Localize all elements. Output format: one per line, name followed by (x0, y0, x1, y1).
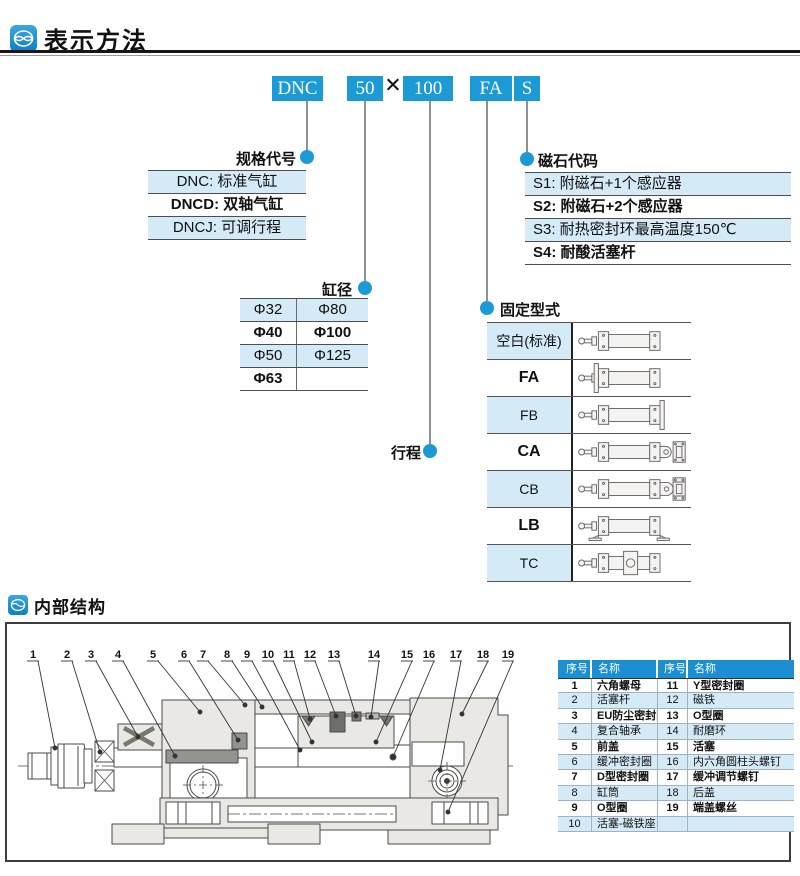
mount-style-icon (573, 323, 691, 359)
label-bore: 缸径 (322, 279, 352, 300)
part-no: 15 (658, 740, 688, 754)
section-icon (8, 595, 28, 615)
mount-style-icon (573, 508, 691, 544)
bore-cell: Φ32 (240, 299, 297, 321)
table-row: S1: 附磁石+1个感应器 (525, 172, 791, 195)
svg-text:5: 5 (150, 649, 156, 661)
model-box-mount: FA (470, 76, 512, 101)
parts-row: 1 六角螺母 11 Y型密封圈 (558, 678, 794, 693)
part-name: 磁铁 (688, 693, 794, 707)
header-no-1: 序号 (558, 660, 592, 678)
label-stroke: 行程 (391, 442, 421, 463)
svg-text:14: 14 (368, 649, 381, 661)
svg-text:2: 2 (64, 649, 70, 661)
svg-text:15: 15 (401, 649, 413, 661)
model-box-prefix: DNC (272, 76, 323, 101)
part-name: 内六角圆柱头螺钉 (688, 755, 794, 769)
bore-cell: Φ40 (240, 322, 297, 344)
part-name: 缓冲密封圈 (592, 755, 658, 769)
part-no: 12 (658, 693, 688, 707)
svg-text:17: 17 (450, 649, 462, 661)
part-name: EU防尘密封圈 (592, 709, 658, 723)
part-no (658, 817, 688, 831)
label-magnet-code: 磁石代码 (538, 150, 598, 171)
parts-row: 3 EU防尘密封圈 13 O型圈 (558, 709, 794, 724)
bore-cell: Φ125 (297, 345, 368, 367)
table-row: S4: 耐酸活塞杆 (525, 241, 791, 264)
part-name: 前盖 (592, 740, 658, 754)
parts-row: 10 活塞-磁铁座 (558, 817, 794, 832)
parts-table-header: 序号 名称 序号 名称 (558, 660, 794, 678)
part-no: 7 (558, 770, 592, 784)
part-name: Y型密封圈 (688, 679, 794, 692)
svg-text:7: 7 (200, 649, 206, 661)
svg-text:11: 11 (283, 649, 295, 661)
table-row: S2: 附磁石+2个感应器 (525, 195, 791, 218)
table-row: DNC: 标准气缸 (148, 170, 306, 193)
svg-text:19: 19 (502, 649, 514, 661)
part-no: 10 (558, 817, 592, 831)
bore-row: Φ40 Φ100 (240, 321, 368, 344)
part-name: O型圈 (592, 801, 658, 815)
mount-code: LB (487, 508, 573, 544)
part-name: 复合轴承 (592, 724, 658, 738)
part-name: 活塞杆 (592, 693, 658, 707)
part-name: 端盖螺丝 (688, 801, 794, 815)
title-rule-thin (0, 55, 800, 56)
part-no: 14 (658, 724, 688, 738)
bore-cell: Φ50 (240, 345, 297, 367)
parts-row: 6 缓冲密封圈 16 内六角圆柱头螺钉 (558, 755, 794, 770)
header-name-1: 名称 (592, 660, 658, 678)
parts-row: 4 复合轴承 14 耐磨环 (558, 724, 794, 739)
parts-table-body: 1 六角螺母 11 Y型密封圈 2 活塞杆 12 磁铁 3 EU防尘密封圈 13… (558, 678, 794, 832)
table-row: S3: 耐热密封环最高温度150℃ (525, 218, 791, 241)
mount-row: CA (487, 433, 691, 470)
model-box-magnet: S (514, 76, 540, 101)
mount-code: CB (487, 471, 573, 507)
part-no: 9 (558, 801, 592, 815)
svg-text:18: 18 (477, 649, 489, 661)
part-name: 缸筒 (592, 786, 658, 800)
brand-icon (10, 25, 37, 52)
multiply-sign: × (378, 69, 408, 102)
header-name-2: 名称 (688, 660, 794, 678)
part-name: 耐磨环 (688, 724, 794, 738)
part-name: O型圈 (688, 709, 794, 723)
part-name: 活塞 (688, 740, 794, 754)
svg-text:8: 8 (224, 649, 230, 661)
part-no: 18 (658, 786, 688, 800)
svg-text:3: 3 (88, 649, 94, 661)
title-rule-thick (0, 50, 800, 53)
mount-code: CA (487, 434, 573, 470)
part-name: 六角螺母 (592, 679, 658, 692)
callout-numbers: 12345678910111213141516171819 (30, 649, 514, 661)
parts-row: 9 O型圈 19 端盖螺丝 (558, 801, 794, 816)
parts-row: 5 前盖 15 活塞 (558, 740, 794, 755)
part-no: 1 (558, 679, 592, 692)
mount-code: FB (487, 397, 573, 433)
bore-row: Φ50 Φ125 (240, 344, 368, 367)
part-no: 2 (558, 693, 592, 707)
table-row: DNCD: 双轴气缸 (148, 193, 306, 216)
table-row: DNCJ: 可调行程 (148, 216, 306, 239)
part-name: D型密封圈 (592, 770, 658, 784)
model-box-stroke: 100 (403, 76, 453, 101)
mount-code: TC (487, 545, 573, 581)
mount-row: TC (487, 544, 691, 581)
mount-code: 空白(标准) (487, 323, 573, 359)
parts-row: 7 D型密封圈 17 缓冲调节螺钉 (558, 770, 794, 785)
part-no: 17 (658, 770, 688, 784)
bore-cell (297, 368, 368, 390)
bore-row: Φ32 Φ80 (240, 298, 368, 321)
mount-row: CB (487, 470, 691, 507)
bore-row: Φ63 (240, 367, 368, 390)
label-mount-type: 固定型式 (500, 299, 560, 320)
mount-row: FB (487, 396, 691, 433)
parts-table: 序号 名称 序号 名称 1 六角螺母 11 Y型密封圈 2 活塞杆 12 磁铁 … (558, 660, 794, 832)
mount-code: FA (487, 360, 573, 396)
part-no: 6 (558, 755, 592, 769)
part-no: 4 (558, 724, 592, 738)
magnet-code-table: S1: 附磁石+1个感应器 S2: 附磁石+2个感应器 S3: 耐热密封环最高温… (525, 172, 791, 265)
bore-table: Φ32 Φ80 Φ40 Φ100 Φ50 Φ125 Φ63 (240, 298, 368, 391)
part-no: 11 (658, 679, 688, 692)
mount-style-icon (573, 360, 691, 396)
svg-text:1: 1 (30, 649, 36, 661)
part-name: 缓冲调节螺钉 (688, 770, 794, 784)
part-no: 16 (658, 755, 688, 769)
mount-row: FA (487, 359, 691, 396)
spec-code-table: DNC: 标准气缸 DNCD: 双轴气缸 DNCJ: 可调行程 (148, 170, 306, 240)
bore-cell: Φ80 (297, 299, 368, 321)
mount-style-icon (573, 471, 691, 507)
svg-text:10: 10 (262, 649, 274, 661)
part-name (688, 817, 794, 831)
part-no: 8 (558, 786, 592, 800)
mount-style-icon (573, 434, 691, 470)
section-title: 内部结构 (34, 593, 106, 618)
label-spec-code: 规格代号 (236, 148, 296, 169)
part-no: 3 (558, 709, 592, 723)
catalog-page: { "header": { "title": "表示方法" }, "model_… (0, 0, 800, 876)
svg-text:4: 4 (115, 649, 122, 661)
mount-row: LB (487, 507, 691, 544)
part-no: 13 (658, 709, 688, 723)
svg-text:12: 12 (304, 649, 316, 661)
mount-row: 空白(标准) (487, 322, 691, 359)
svg-text:6: 6 (181, 649, 187, 661)
header-no-2: 序号 (658, 660, 688, 678)
bore-cell: Φ100 (297, 322, 368, 344)
part-no: 5 (558, 740, 592, 754)
mount-type-table: 空白(标准) FA FB CA CB LB TC (487, 322, 691, 582)
part-name: 活塞-磁铁座 (592, 817, 658, 831)
mount-style-icon (573, 545, 691, 581)
svg-text:13: 13 (328, 649, 340, 661)
parts-row: 2 活塞杆 12 磁铁 (558, 693, 794, 708)
svg-text:9: 9 (244, 649, 250, 661)
bore-cell: Φ63 (240, 368, 297, 390)
svg-text:16: 16 (423, 649, 435, 661)
part-name: 后盖 (688, 786, 794, 800)
part-no: 19 (658, 801, 688, 815)
cylinder-cross-section-diagram: 12345678910111213141516171819 (6, 623, 551, 860)
mount-style-icon (573, 397, 691, 433)
parts-row: 8 缸筒 18 后盖 (558, 786, 794, 801)
